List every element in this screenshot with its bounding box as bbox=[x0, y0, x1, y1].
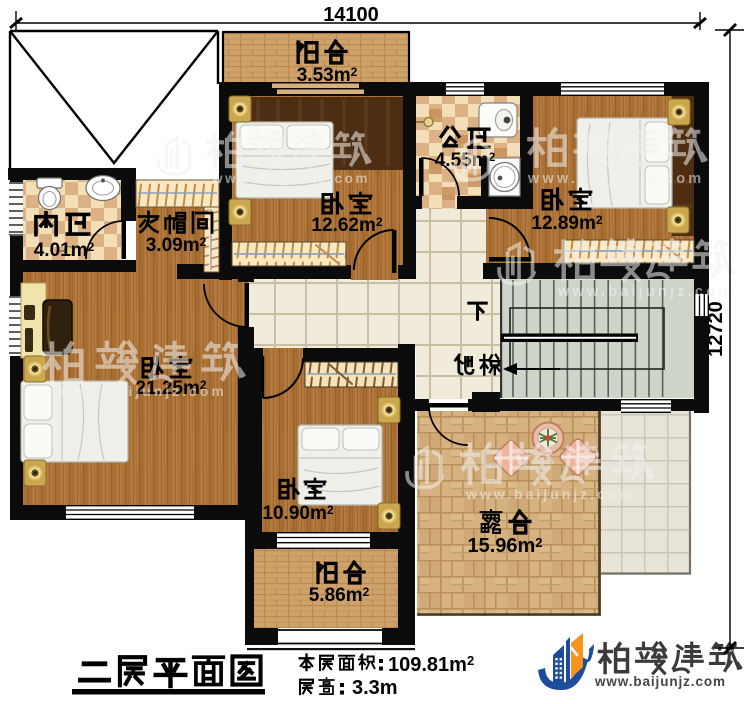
svg-text:www.baijunjz.com: www.baijunjz.com bbox=[57, 383, 227, 399]
svg-text:3.53m2: 3.53m2 bbox=[297, 65, 358, 86]
svg-text:12.62m2: 12.62m2 bbox=[311, 215, 382, 236]
svg-text:109.81m2: 109.81m2 bbox=[388, 653, 474, 676]
svg-text:www.baijunjz.com: www.baijunjz.com bbox=[527, 171, 704, 187]
svg-text:3.3m: 3.3m bbox=[352, 677, 398, 699]
svg-text:3.09m2: 3.09m2 bbox=[146, 235, 207, 256]
svg-text:www.baijunjz.com: www.baijunjz.com bbox=[465, 486, 635, 502]
svg-text:www.baijunjz.com: www.baijunjz.com bbox=[594, 674, 726, 689]
svg-text:5.86m2: 5.86m2 bbox=[309, 585, 370, 606]
svg-text:15.96m2: 15.96m2 bbox=[467, 535, 542, 557]
svg-text:4.01m2: 4.01m2 bbox=[34, 240, 95, 261]
svg-text:14100: 14100 bbox=[323, 4, 379, 26]
svg-text:12.89m2: 12.89m2 bbox=[531, 213, 602, 234]
svg-text:10.90m2: 10.90m2 bbox=[262, 503, 333, 524]
svg-text:www.baijunjz.com: www.baijunjz.com bbox=[557, 284, 734, 300]
svg-text:www.baijunjz.com: www.baijunjz.com bbox=[211, 171, 370, 186]
svg-text:12720: 12720 bbox=[705, 301, 727, 357]
